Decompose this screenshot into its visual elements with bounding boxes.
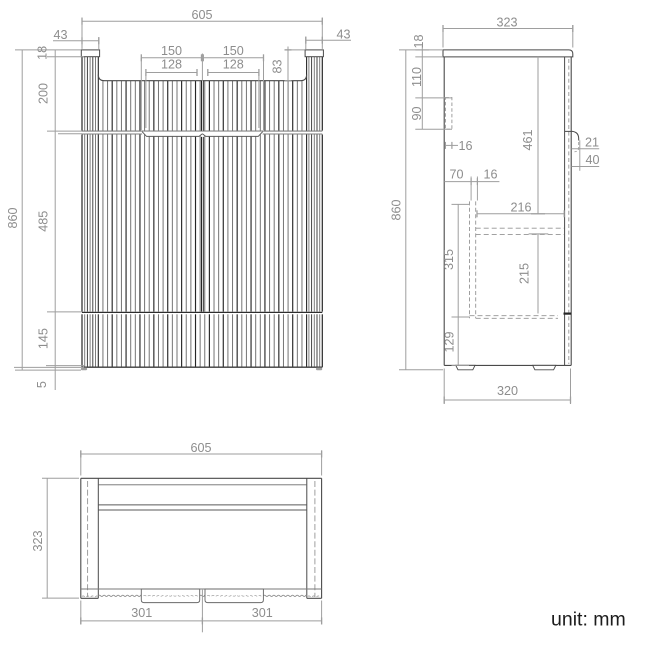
svg-text:605: 605 — [191, 8, 212, 22]
svg-text:323: 323 — [496, 16, 517, 30]
svg-text:200: 200 — [36, 83, 50, 104]
svg-text:128: 128 — [223, 58, 244, 72]
svg-text:70: 70 — [449, 167, 463, 181]
svg-text:43: 43 — [53, 28, 67, 42]
svg-text:18: 18 — [412, 34, 426, 48]
svg-text:320: 320 — [497, 384, 518, 398]
svg-text:323: 323 — [31, 530, 45, 551]
svg-text:301: 301 — [131, 606, 152, 620]
svg-text:129: 129 — [442, 331, 456, 352]
svg-text:605: 605 — [190, 441, 211, 455]
svg-text:16: 16 — [459, 139, 473, 153]
svg-text:145: 145 — [36, 328, 50, 349]
svg-text:150: 150 — [223, 44, 244, 58]
svg-text:128: 128 — [161, 58, 182, 72]
svg-text:5: 5 — [35, 381, 49, 388]
svg-text:301: 301 — [252, 606, 273, 620]
svg-text:unit: mm: unit: mm — [551, 609, 626, 631]
svg-text:40: 40 — [585, 153, 599, 167]
svg-text:461: 461 — [521, 129, 535, 150]
svg-text:215: 215 — [518, 263, 532, 284]
svg-text:485: 485 — [36, 211, 50, 232]
svg-text:21: 21 — [585, 135, 599, 149]
svg-text:216: 216 — [510, 200, 531, 214]
svg-text:150: 150 — [161, 44, 182, 58]
svg-text:860: 860 — [6, 207, 20, 228]
svg-text:16: 16 — [483, 167, 497, 181]
svg-text:90: 90 — [410, 106, 424, 120]
svg-text:83: 83 — [271, 59, 285, 73]
svg-text:43: 43 — [336, 27, 350, 41]
svg-text:315: 315 — [442, 249, 456, 270]
svg-text:18: 18 — [36, 46, 50, 60]
svg-text:860: 860 — [389, 199, 403, 220]
svg-text:110: 110 — [410, 67, 424, 87]
